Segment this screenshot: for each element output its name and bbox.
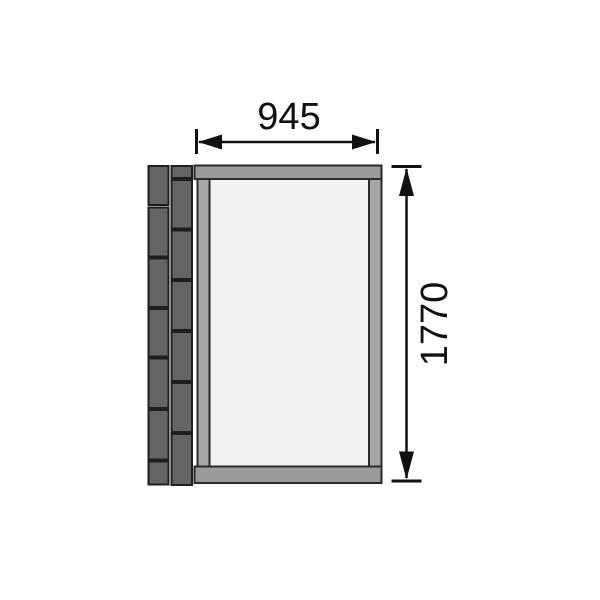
frame-bottom-rail (195, 467, 382, 484)
wall-block (172, 332, 193, 381)
wall-block (172, 231, 193, 280)
wall-block (149, 166, 169, 205)
width-dimension-label: 945 (257, 96, 320, 138)
wall-block (172, 180, 193, 229)
wall-block (172, 434, 193, 485)
wall-block (149, 462, 169, 485)
arrowhead-down-icon (399, 452, 414, 480)
arrowhead-right-icon (352, 135, 376, 150)
wall-block (149, 208, 169, 257)
wall-section (149, 166, 193, 485)
wall-block (149, 309, 169, 357)
arrowhead-left-icon (198, 135, 222, 150)
wall-block (149, 410, 169, 460)
wall-block (172, 383, 193, 432)
wall-block (149, 359, 169, 409)
width-dimension: 945 (197, 96, 378, 154)
door-panel (210, 179, 370, 467)
height-dimension: 1770 (392, 167, 457, 482)
wall-block (172, 166, 193, 178)
wall-block (172, 281, 193, 330)
arrowhead-up-icon (399, 168, 414, 196)
frame-top-rail (195, 166, 382, 180)
door-frame (195, 166, 382, 484)
technical-drawing-svg: 945 1770 (0, 0, 600, 600)
frame-right-stile (369, 179, 382, 467)
frame-left-stile (198, 179, 210, 467)
height-dimension-label: 1770 (414, 282, 456, 367)
diagram-canvas: 945 1770 (0, 0, 600, 600)
wall-block (149, 259, 169, 308)
